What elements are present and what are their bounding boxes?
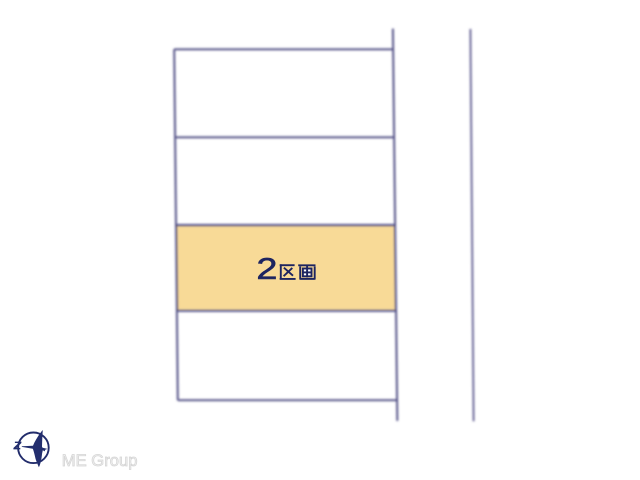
svg-text:ME Group: ME Group xyxy=(62,451,138,470)
